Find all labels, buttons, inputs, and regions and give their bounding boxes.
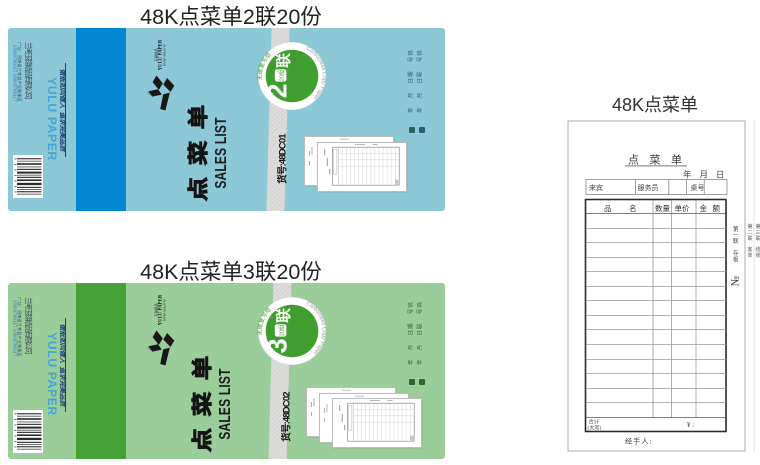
svg-text:来宾: 来宾	[589, 183, 603, 192]
svg-text:第: 第	[748, 223, 753, 230]
svg-text:¥ :: ¥ :	[687, 421, 694, 429]
svg-text:合计: 合计	[589, 418, 599, 426]
svg-text:根: 根	[733, 256, 739, 264]
svg-text:三: 三	[756, 230, 760, 236]
svg-text:点菜单: 点菜单	[628, 154, 693, 167]
svg-text:联: 联	[756, 235, 760, 242]
svg-text:额: 额	[713, 203, 721, 213]
svg-text:联: 联	[275, 308, 292, 323]
svg-text:二: 二	[748, 230, 753, 236]
svg-text:(大写): (大写)	[588, 424, 602, 432]
svg-text:单: 单	[748, 252, 753, 259]
svg-text:联: 联	[733, 237, 739, 245]
svg-text:联: 联	[748, 235, 753, 242]
svg-text:第: 第	[756, 223, 760, 230]
svg-text:20组: 20组	[277, 69, 285, 81]
svg-text:存: 存	[733, 249, 739, 257]
svg-text:2: 2	[263, 83, 293, 98]
svg-text:名: 名	[629, 203, 637, 213]
svg-text:联: 联	[275, 53, 292, 68]
svg-text:第: 第	[733, 225, 739, 233]
svg-text:数量: 数量	[655, 203, 670, 213]
svg-text:服务员: 服务员	[638, 183, 659, 192]
svg-text:3: 3	[263, 338, 293, 353]
svg-text:金: 金	[700, 203, 708, 213]
svg-text:经手人:: 经手人:	[625, 437, 653, 446]
svg-text:品: 品	[604, 204, 612, 213]
svg-text:单价: 单价	[675, 203, 690, 213]
svg-text:桌号: 桌号	[691, 183, 705, 192]
svg-text:年月日: 年月日	[683, 170, 733, 180]
svg-text:结: 结	[756, 246, 760, 253]
svg-text:20组: 20组	[277, 324, 285, 336]
svg-text:账: 账	[756, 252, 760, 259]
svg-text:客: 客	[748, 246, 753, 253]
svg-text:№: №	[730, 276, 742, 287]
